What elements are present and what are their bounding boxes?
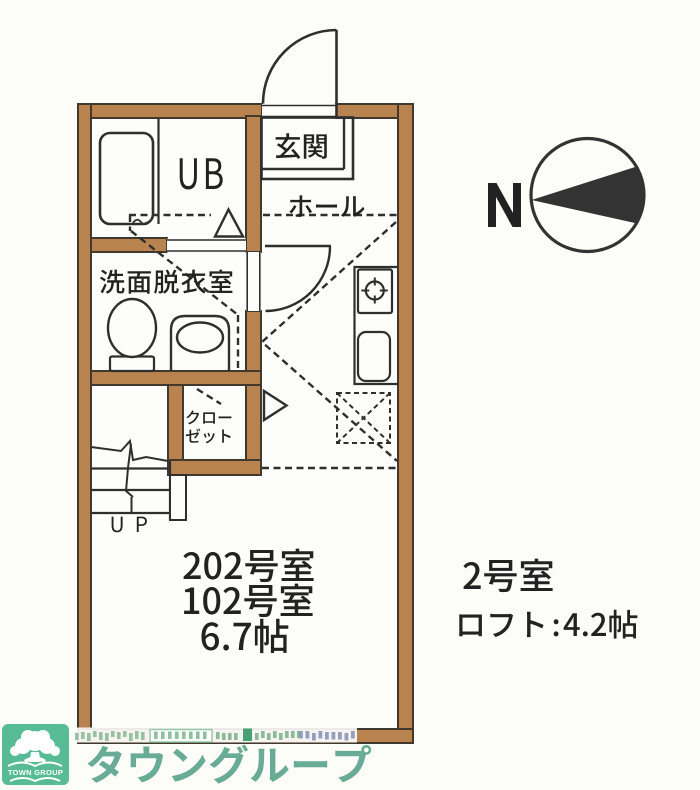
svg-text:TOWN GROUP: TOWN GROUP [8,768,63,777]
